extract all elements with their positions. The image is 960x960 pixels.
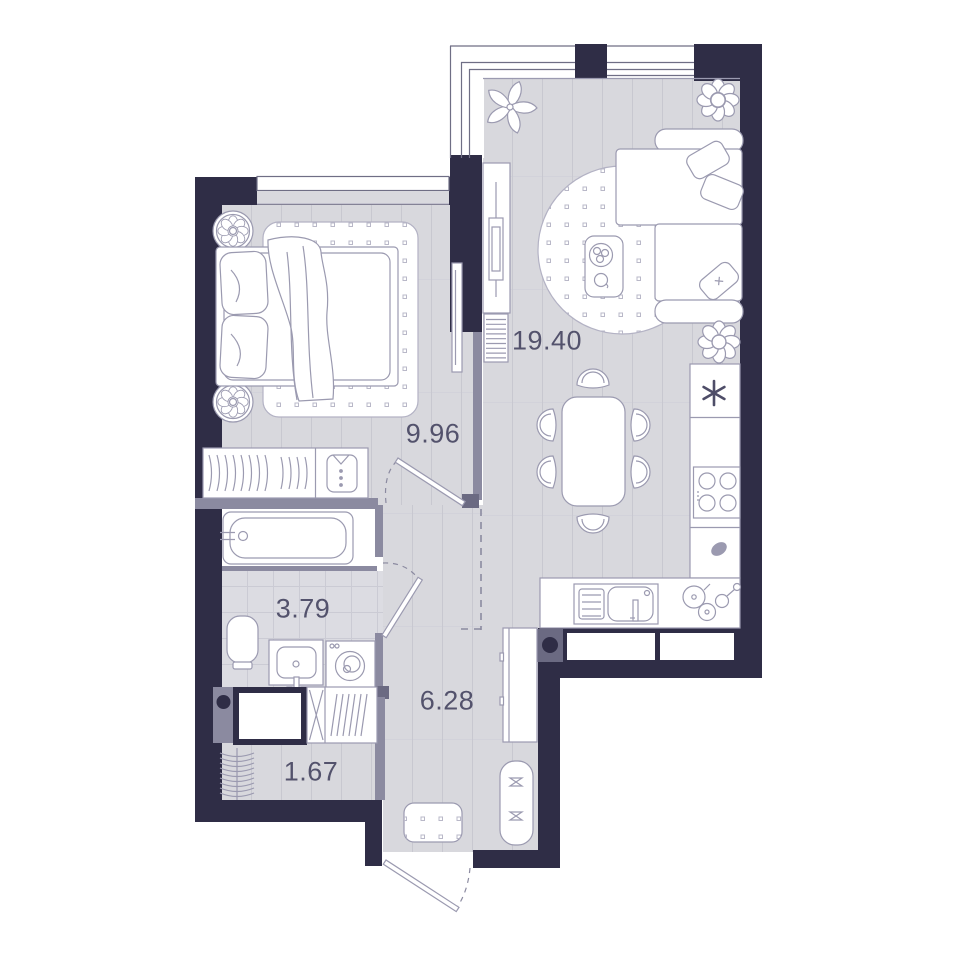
toilet xyxy=(227,616,258,669)
zone-boundary xyxy=(461,509,481,630)
floor-plan: 19.40 9.96 3.79 6.28 1.67 xyxy=(0,0,960,960)
floorplan-artwork xyxy=(0,0,960,960)
radiator-living xyxy=(484,314,508,362)
shaft-circle xyxy=(542,637,558,653)
clothes-rail xyxy=(220,748,254,800)
tv-console xyxy=(483,163,510,313)
bedroom-window xyxy=(257,177,449,205)
area-label-living-kitchen: 19.40 xyxy=(512,326,582,357)
hall-closet xyxy=(500,628,537,742)
bathroom-door xyxy=(382,563,422,638)
area-label-bathroom: 3.79 xyxy=(276,594,331,625)
stove xyxy=(694,467,741,518)
dining-table xyxy=(537,369,650,533)
area-label-wardrobe: 1.67 xyxy=(284,757,339,788)
area-label-bedroom: 9.96 xyxy=(406,419,461,450)
entry-door xyxy=(383,860,470,912)
bathtub xyxy=(220,512,353,564)
wall-pier-top xyxy=(575,44,607,79)
plant-icon xyxy=(697,79,739,121)
kitchen-counter-right xyxy=(690,364,740,578)
doormat xyxy=(404,803,462,842)
bedside-plant xyxy=(213,382,253,422)
bed xyxy=(216,237,398,401)
wall-niche xyxy=(660,633,734,660)
plant-icon xyxy=(698,321,740,363)
coffee-table xyxy=(585,236,623,297)
wall-niche xyxy=(567,633,655,660)
bed-pillow xyxy=(219,315,268,379)
washing-machine xyxy=(326,641,375,689)
bathroom-sink xyxy=(269,640,323,692)
shaft-circle xyxy=(217,695,231,709)
area-label-hallway: 6.28 xyxy=(420,686,475,717)
duct-box xyxy=(236,690,304,742)
plant-icon xyxy=(476,72,545,140)
bedroom-mirror xyxy=(452,263,462,372)
bedroom-door xyxy=(386,458,466,506)
bedroom-wardrobe xyxy=(203,448,368,498)
bedside-plant xyxy=(213,211,253,251)
bed-pillow xyxy=(219,251,268,315)
kitchen-counter-bottom xyxy=(540,578,741,628)
hall-bench xyxy=(500,761,533,845)
rail-cabinet xyxy=(307,687,377,743)
wall-corner-top-right xyxy=(694,44,762,81)
